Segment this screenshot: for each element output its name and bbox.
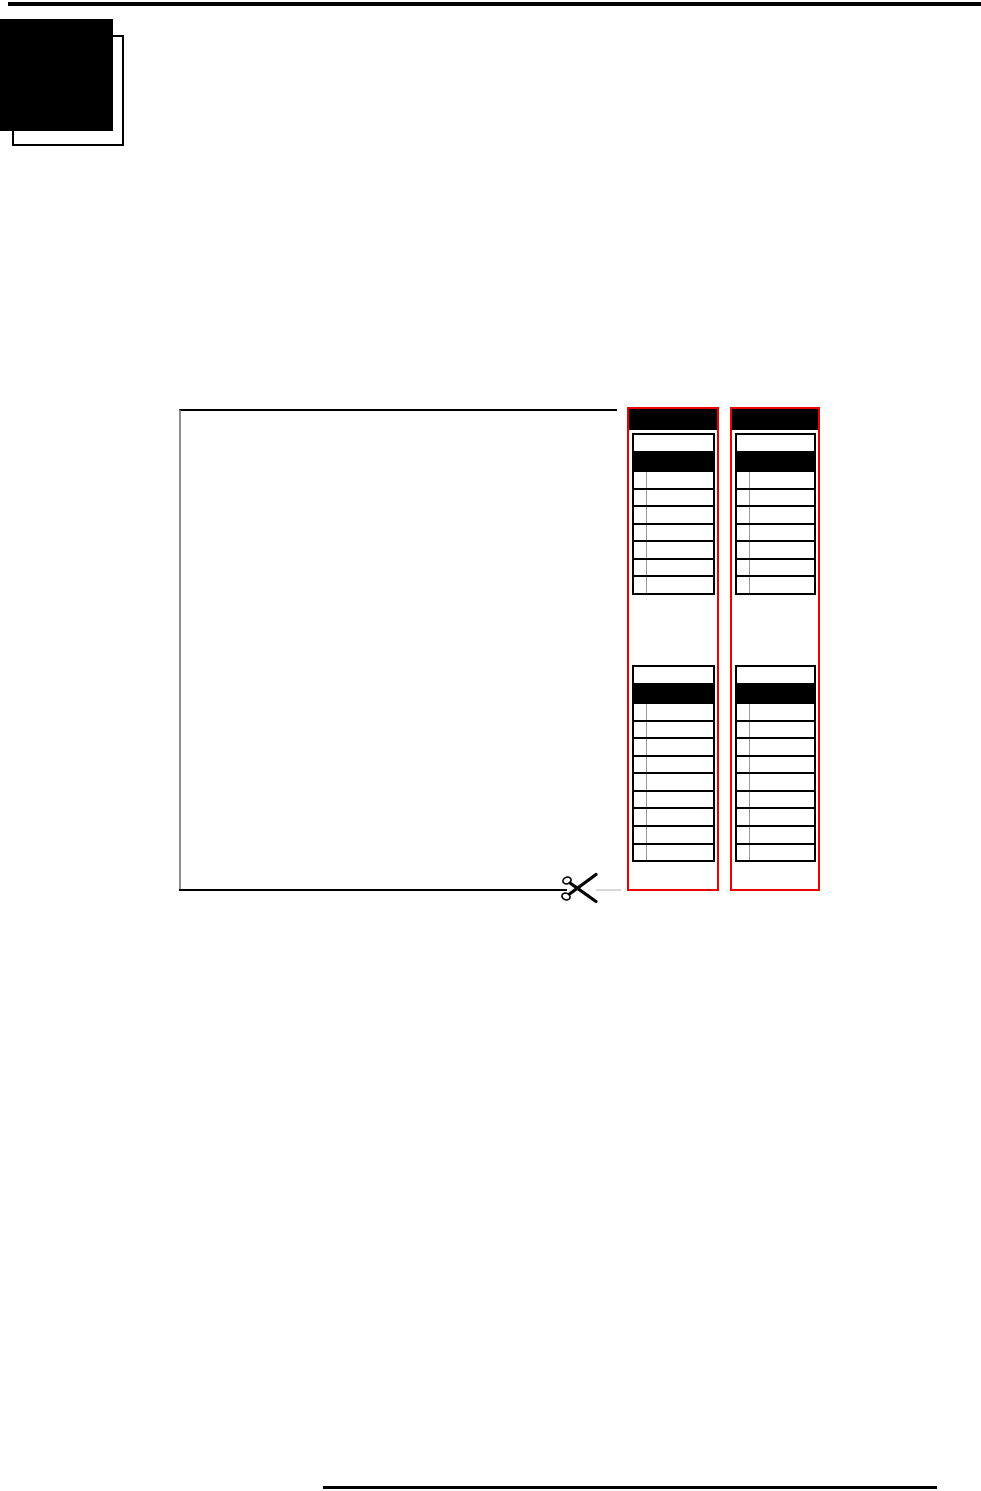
- row-divider: [749, 507, 750, 523]
- row-divider: [749, 809, 750, 825]
- document-page: [0, 0, 981, 1491]
- table-row: [737, 558, 814, 576]
- table-row: [634, 505, 713, 523]
- table-row: [634, 558, 713, 576]
- row-divider: [646, 507, 647, 523]
- row-divider: [749, 722, 750, 738]
- table-row: [737, 505, 814, 523]
- row-divider: [749, 704, 750, 720]
- cutout-table: [632, 665, 715, 862]
- row-divider: [646, 472, 647, 488]
- page-bottom-rule: [323, 1486, 937, 1489]
- reference-card-1: [627, 407, 719, 891]
- row-divider: [646, 845, 647, 861]
- table-row: [634, 772, 713, 790]
- row-divider: [749, 845, 750, 861]
- table-title-row: [634, 435, 713, 451]
- card-header-bar: [732, 409, 818, 430]
- table-row: [737, 825, 814, 843]
- cutout-table: [735, 665, 816, 862]
- cut-line-faint-segment: [596, 889, 621, 891]
- row-divider: [646, 560, 647, 576]
- cut-out-area: [179, 409, 617, 889]
- table-row: [737, 575, 814, 593]
- table-row: [737, 772, 814, 790]
- table-row: [634, 488, 713, 506]
- table-row: [737, 523, 814, 541]
- table-row: [634, 720, 713, 738]
- table-row: [737, 843, 814, 861]
- table-row: [737, 470, 814, 488]
- table-title-row: [737, 667, 814, 683]
- cutout-table: [632, 433, 715, 595]
- table-header-bar: [634, 683, 713, 702]
- table-row: [737, 488, 814, 506]
- row-divider: [749, 757, 750, 773]
- cut-line: [179, 889, 567, 891]
- reference-card-2: [730, 407, 820, 891]
- row-divider: [749, 577, 750, 593]
- table-title-row: [737, 435, 814, 451]
- row-divider: [646, 809, 647, 825]
- table-row: [737, 702, 814, 720]
- table-row: [634, 702, 713, 720]
- table-row: [737, 737, 814, 755]
- chapter-tab-marker: [0, 19, 113, 131]
- table-row: [634, 737, 713, 755]
- row-divider: [749, 739, 750, 755]
- scissors-icon: [560, 872, 598, 904]
- row-divider: [749, 560, 750, 576]
- row-divider: [646, 525, 647, 541]
- table-row: [737, 790, 814, 808]
- table-row: [737, 720, 814, 738]
- row-divider: [749, 827, 750, 843]
- table-header-bar: [737, 683, 814, 702]
- table-row: [634, 540, 713, 558]
- table-row: [634, 755, 713, 773]
- row-divider: [749, 525, 750, 541]
- table-row: [634, 575, 713, 593]
- row-divider: [646, 792, 647, 808]
- table-header-bar: [737, 451, 814, 470]
- card-header-bar: [629, 409, 717, 430]
- table-row: [737, 540, 814, 558]
- page-top-rule: [8, 2, 981, 6]
- row-divider: [749, 490, 750, 506]
- table-row: [737, 755, 814, 773]
- cutout-table: [735, 433, 816, 595]
- row-divider: [646, 704, 647, 720]
- row-divider: [646, 739, 647, 755]
- row-divider: [749, 774, 750, 790]
- row-divider: [749, 792, 750, 808]
- row-divider: [749, 472, 750, 488]
- table-row: [634, 790, 713, 808]
- table-row: [634, 807, 713, 825]
- row-divider: [646, 774, 647, 790]
- table-header-bar: [634, 451, 713, 470]
- row-divider: [646, 827, 647, 843]
- table-title-row: [634, 667, 713, 683]
- row-divider: [646, 757, 647, 773]
- table-row: [737, 807, 814, 825]
- row-divider: [646, 542, 647, 558]
- row-divider: [749, 542, 750, 558]
- table-row: [634, 523, 713, 541]
- row-divider: [646, 722, 647, 738]
- row-divider: [646, 577, 647, 593]
- table-row: [634, 825, 713, 843]
- table-row: [634, 470, 713, 488]
- row-divider: [646, 490, 647, 506]
- table-row: [634, 843, 713, 861]
